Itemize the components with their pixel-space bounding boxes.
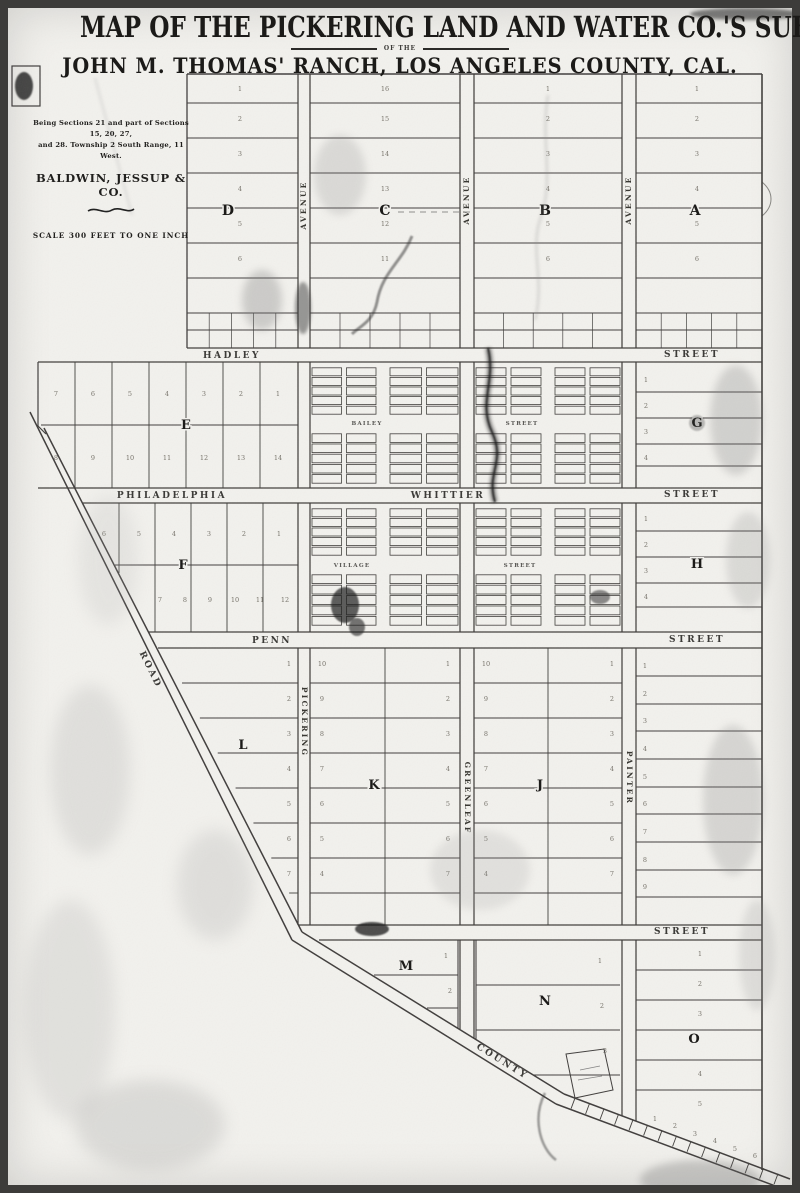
flourish-icon	[86, 206, 136, 215]
scale-note: SCALE 300 FEET TO ONE INCH	[30, 231, 192, 240]
flourish-squiggle	[30, 200, 192, 219]
surveyor-firm: BALDWIN, JESSUP & CO.	[30, 171, 192, 199]
map-subtitle: JOHN M. THOMAS' RANCH, LOS ANGELES COUNT…	[32, 53, 768, 78]
scanned-map-page: HADLEY STREET PHILADELPHIA WHITTIER STRE…	[0, 0, 800, 1193]
map-header: MAP OF THE PICKERING LAND AND WATER CO.'…	[0, 10, 800, 78]
title-rule-left	[291, 48, 377, 50]
legend-description-line1: Being Sections 21 and part of Sections 1…	[30, 118, 192, 140]
title-connector: OF THE	[384, 45, 416, 52]
legend-block: Being Sections 21 and part of Sections 1…	[30, 118, 192, 240]
title-rule-right	[423, 48, 509, 50]
map-title: MAP OF THE PICKERING LAND AND WATER CO.'…	[80, 10, 720, 44]
legend-description-line2: and 28. Township 2 South Range, 11 West.	[30, 140, 192, 162]
title-connector-row: OF THE	[0, 45, 800, 52]
